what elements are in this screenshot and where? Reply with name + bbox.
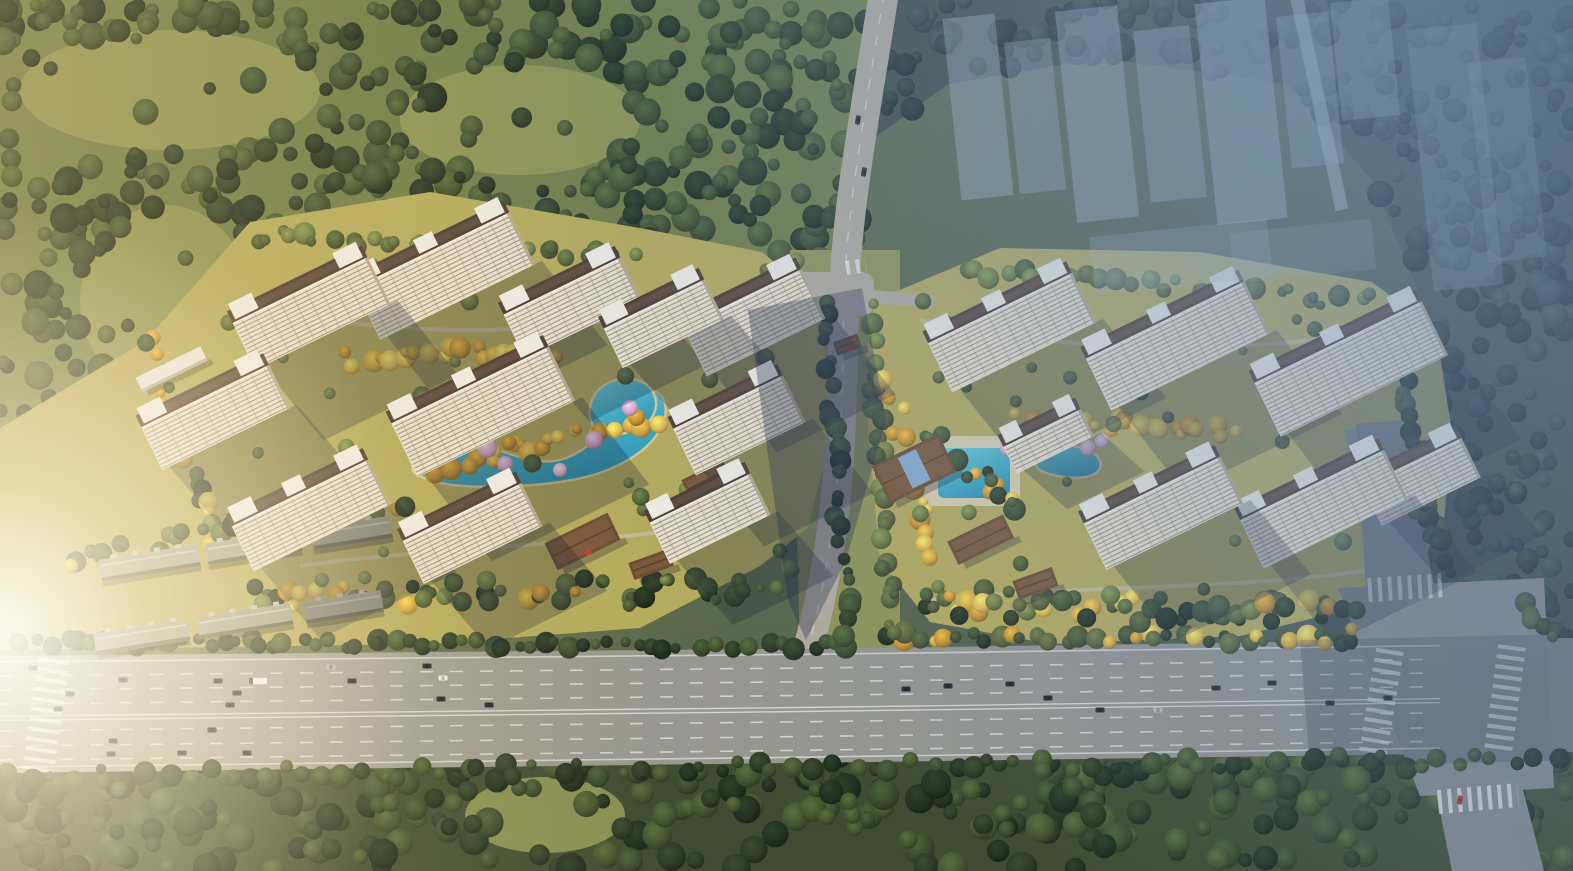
sun-flare — [0, 0, 1573, 871]
atmosphere — [0, 0, 1573, 871]
aerial-render-viewport — [0, 0, 1573, 871]
scene-svg — [0, 0, 1573, 871]
